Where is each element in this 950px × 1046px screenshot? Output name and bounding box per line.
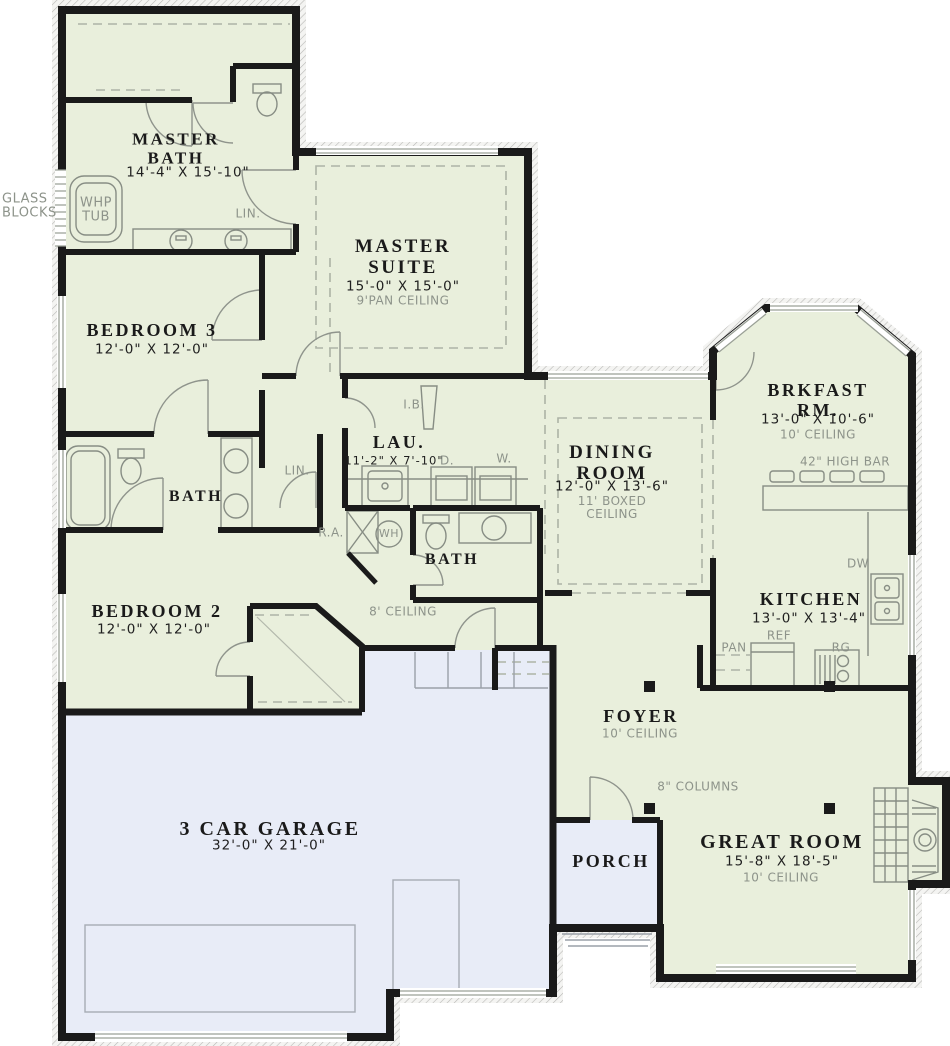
porch-floor <box>553 820 660 928</box>
floor-plan: MASTER BATH 14'-4" X 15'-10" MASTER SUIT… <box>0 0 950 1046</box>
floor-plan-drawing <box>0 0 950 1046</box>
